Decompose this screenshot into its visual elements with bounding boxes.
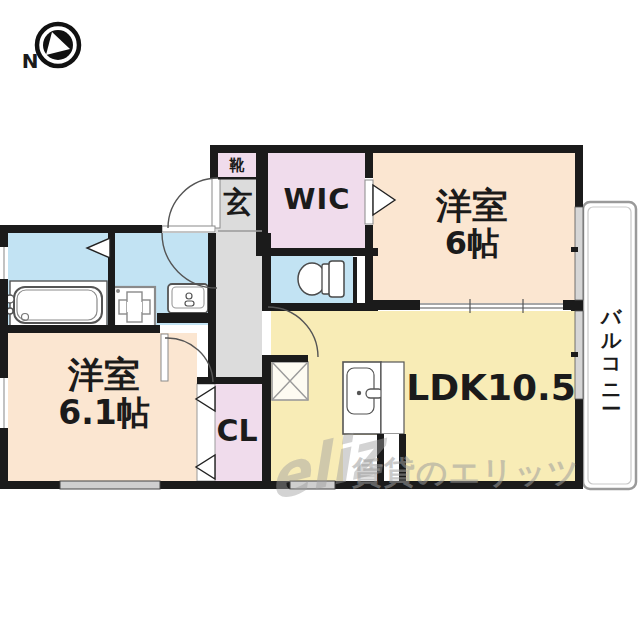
washroom-door-leaf <box>162 226 215 232</box>
wic-label: WIC <box>283 184 350 215</box>
floorplan: N 靴 玄 WIC 洋室 6帖 洋室 6.1帖 LDK10.5 CL バルコニー… <box>0 0 640 640</box>
ldk-window-bottom <box>290 481 335 489</box>
bedroom-lower-door-leaf <box>161 334 168 381</box>
washing-machine-pan <box>114 287 155 327</box>
closet-label: CL <box>216 415 257 447</box>
bathtub <box>6 281 107 328</box>
bedroom-upper-size: 6帖 <box>436 226 508 261</box>
front-door-leaf <box>212 178 220 228</box>
toilet-door-strip <box>357 257 365 303</box>
ldk-label: LDK10.5 <box>406 369 576 408</box>
bedroom-lower-size: 6.1帖 <box>58 395 149 431</box>
bedroom-lower-label: 洋室 6.1帖 <box>58 356 149 431</box>
bedroom-lower-window-bottom <box>60 481 160 489</box>
bedroom-lower-name: 洋室 <box>58 356 149 395</box>
floorplan-drawing <box>0 0 640 640</box>
basin-faucet-icon <box>185 301 194 306</box>
washbasin <box>168 284 208 313</box>
entrance-label: 玄 <box>224 187 253 218</box>
bedroom-upper-window-right <box>575 207 583 300</box>
basin-faucet-icon <box>186 293 192 299</box>
compass-icon <box>37 24 79 66</box>
kitchen-faucet-icon <box>357 391 361 395</box>
compass-north-label: N <box>22 51 39 73</box>
shoe-cabinet-label: 靴 <box>230 157 245 173</box>
bedroom-upper-label: 洋室 6帖 <box>436 187 508 260</box>
wic-door-leaf <box>365 180 373 224</box>
refrigerator-space <box>272 362 308 400</box>
balcony-label: バルコニー <box>600 294 622 400</box>
toilet <box>298 261 344 297</box>
bedroom-upper-name: 洋室 <box>436 187 508 226</box>
front-door-arc <box>168 178 218 228</box>
kitchen-passage <box>384 434 399 481</box>
